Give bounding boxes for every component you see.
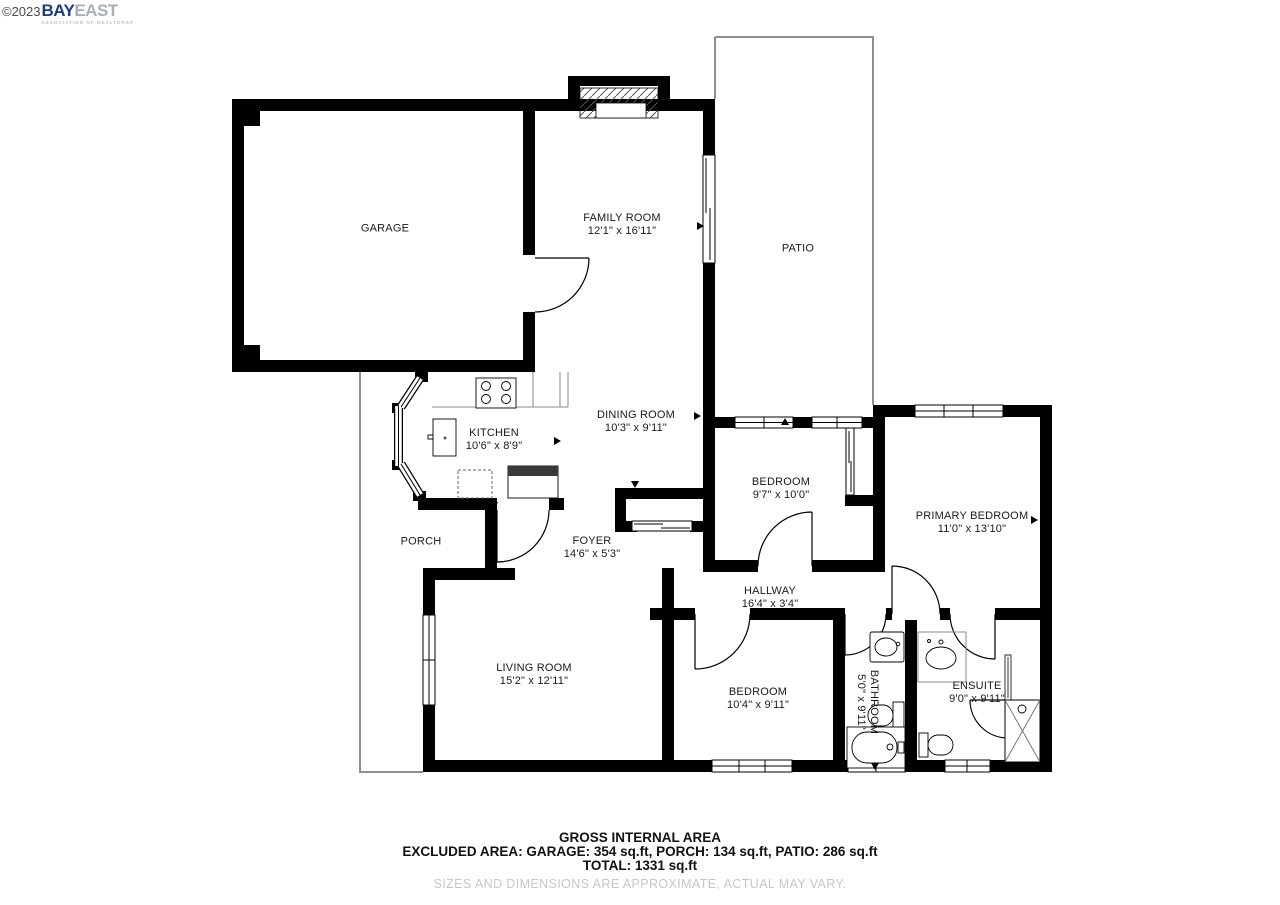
room-label-family-room: FAMILY ROOM 12'1" x 16'11": [583, 212, 661, 238]
room-label-bedroom-bottom: BEDROOM 10'4" x 9'11": [727, 686, 789, 712]
bayeast-logo: ©2023 BAYEAST ASSOCIATION OF REALTORS®: [2, 2, 134, 26]
brand-bay: BAY: [42, 1, 75, 20]
primary-door: [892, 566, 940, 614]
room-label-bedroom-top: BEDROOM 9'7" x 10'0": [752, 476, 810, 502]
room-label-patio: PATIO: [782, 243, 814, 256]
floor-plan-svg: [0, 0, 1280, 905]
gross-area-title: GROSS INTERNAL AREA: [0, 831, 1280, 845]
closet-slider: [846, 428, 854, 495]
room-label-hallway: HALLWAY 16'4" x 3'4": [742, 585, 799, 611]
room-label-kitchen: KITCHEN 10'6" x 8'9": [466, 427, 523, 453]
porch-outline: [360, 372, 423, 772]
total-area-line: TOTAL: 1331 sq.ft: [0, 859, 1280, 873]
bedroom-top-door: [758, 512, 812, 566]
floor-plan-page: ©2023 BAYEAST ASSOCIATION OF REALTORS® G…: [0, 0, 1280, 905]
bedroom-bottom-door: [695, 614, 750, 669]
door-openings: [523, 255, 995, 620]
room-label-dining-room: DINING ROOM 10'3" x 9'11": [597, 409, 675, 435]
room-label-foyer: FOYER 14'6" x 5'3": [564, 535, 621, 561]
brand-wordmark: BAYEAST ASSOCIATION OF REALTORS®: [42, 2, 135, 26]
front-door: [497, 510, 549, 562]
brand-subtitle: ASSOCIATION OF REALTORS®: [42, 21, 135, 26]
kitchen-island: [508, 466, 558, 498]
ensuite-sink: [918, 632, 966, 682]
stove: [476, 378, 516, 408]
room-label-porch: PORCH: [401, 536, 442, 549]
garage-door: [535, 258, 589, 312]
refrigerator: [428, 419, 456, 456]
fireplace: [580, 88, 658, 118]
ensuite-toilet: [919, 733, 953, 757]
patio-outline: [715, 37, 873, 405]
ensuite-door: [950, 614, 995, 659]
disclaimer-line: SIZES AND DIMENSIONS ARE APPROXIMATE, AC…: [0, 877, 1280, 891]
shower: [1005, 655, 1040, 762]
excluded-area-line: EXCLUDED AREA: GARAGE: 354 sq.ft, PORCH:…: [0, 845, 1280, 859]
dishwasher: [458, 470, 492, 498]
room-label-primary-bedroom: PRIMARY BEDROOM 11'0" x 13'10": [916, 510, 1029, 536]
copyright-year: ©2023: [2, 2, 41, 18]
bathroom-sink: [870, 632, 904, 662]
room-label-bathroom: BATHROOM 5'0" x 9'11": [854, 670, 880, 734]
foyer-closet-slider: [632, 521, 692, 531]
brand-east: EAST: [74, 1, 117, 20]
bay-window: [399, 378, 421, 495]
room-label-garage: GARAGE: [361, 223, 409, 236]
sliding-door: [703, 155, 715, 263]
room-label-ensuite: ENSUITE 9'0" x 9'11": [949, 680, 1005, 706]
area-summary: GROSS INTERNAL AREA EXCLUDED AREA: GARAG…: [0, 831, 1280, 891]
room-label-living-room: LIVING ROOM 15'2" x 12'11": [496, 662, 572, 688]
